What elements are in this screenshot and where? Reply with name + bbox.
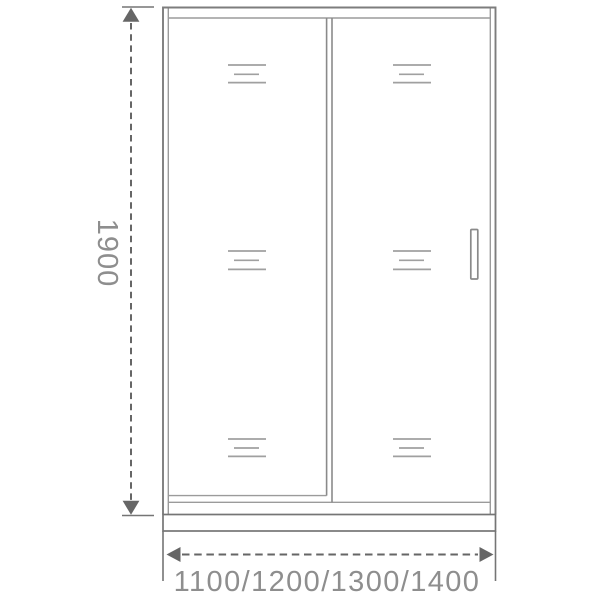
svg-text:1100/1200/1300/1400: 1100/1200/1300/1400 xyxy=(174,566,481,598)
svg-text:1900: 1900 xyxy=(91,219,123,288)
